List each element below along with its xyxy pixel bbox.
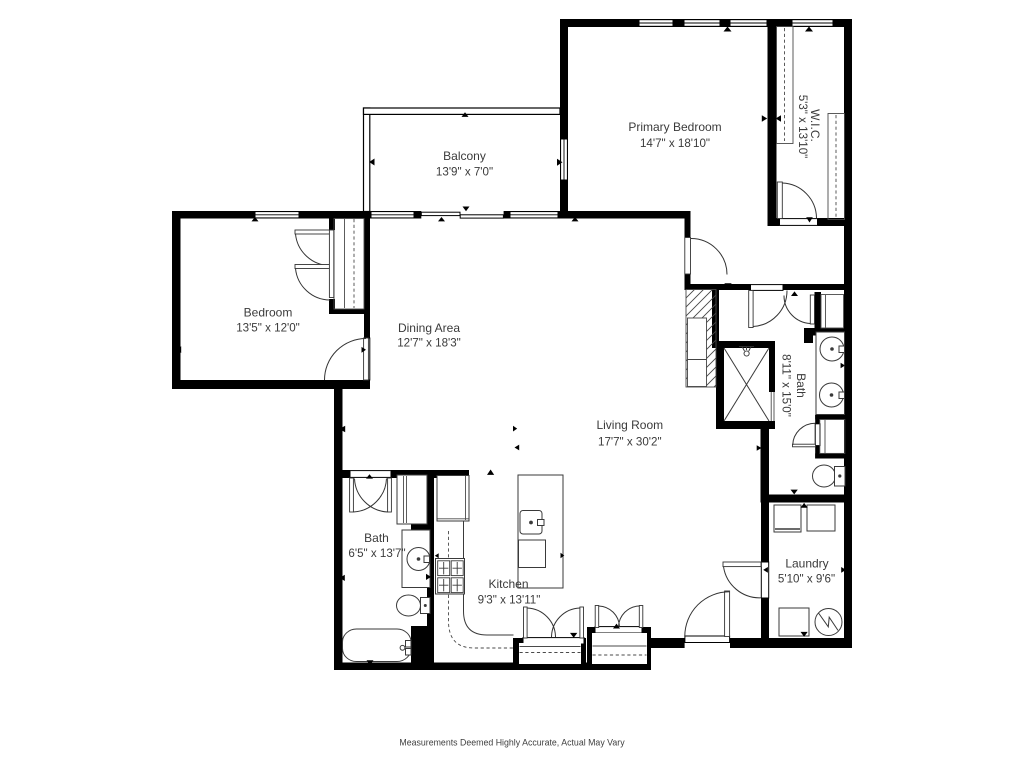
svg-text:Balcony: Balcony xyxy=(443,149,486,163)
svg-text:5'3" x 13'10": 5'3" x 13'10" xyxy=(796,95,809,159)
svg-text:Kitchen: Kitchen xyxy=(488,577,528,591)
svg-text:13'5" x 12'0": 13'5" x 12'0" xyxy=(236,321,300,334)
svg-text:14'7" x 18'10": 14'7" x 18'10" xyxy=(640,137,710,150)
svg-text:Bath: Bath xyxy=(794,373,808,398)
svg-text:8'11" x 15'0": 8'11" x 15'0" xyxy=(780,354,793,417)
svg-text:6'5" x 13'7": 6'5" x 13'7" xyxy=(348,547,405,560)
svg-text:Living Room: Living Room xyxy=(596,418,663,432)
svg-text:Laundry: Laundry xyxy=(785,556,828,570)
svg-text:5'10" x 9'6": 5'10" x 9'6" xyxy=(778,573,835,586)
svg-text:17'7" x 30'2": 17'7" x 30'2" xyxy=(598,435,662,448)
svg-text:9'3" x 13'11": 9'3" x 13'11" xyxy=(478,594,541,607)
svg-text:Measurements Deemed Highly Acc: Measurements Deemed Highly Accurate, Act… xyxy=(399,738,625,748)
svg-text:12'7" x 18'3": 12'7" x 18'3" xyxy=(397,337,461,350)
svg-text:Dining Area: Dining Area xyxy=(398,321,460,335)
svg-text:Bath: Bath xyxy=(364,531,389,545)
svg-text:Bedroom: Bedroom xyxy=(244,305,293,319)
svg-text:W.I.C.: W.I.C. xyxy=(808,109,822,142)
svg-text:13'9" x 7'0": 13'9" x 7'0" xyxy=(436,166,493,179)
svg-text:Primary Bedroom: Primary Bedroom xyxy=(628,120,721,134)
